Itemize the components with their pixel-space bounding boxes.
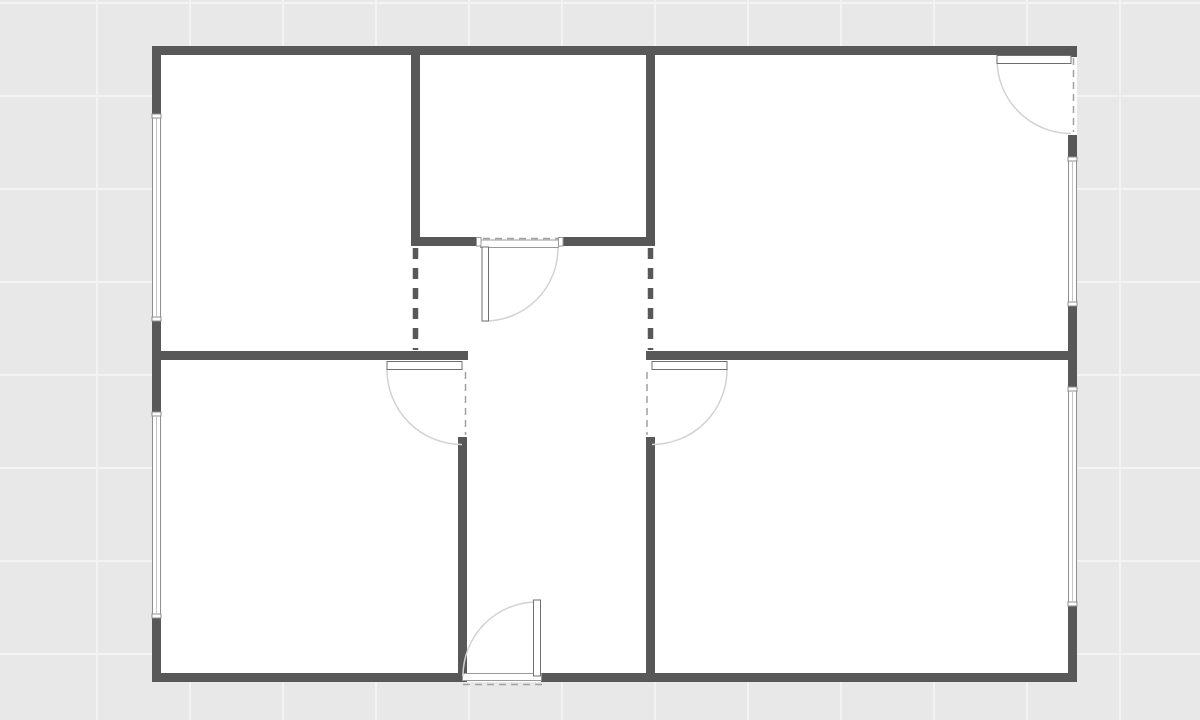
window-end-cap — [1068, 302, 1077, 306]
window-end-cap — [1068, 387, 1077, 391]
window-end-cap — [152, 317, 161, 321]
jamb-top-room-left — [477, 238, 482, 247]
wall-top-room-bottom-right[interactable] — [562, 237, 655, 246]
wall-exterior-left-middle[interactable] — [152, 320, 161, 413]
door-leaf-exterior-top[interactable] — [997, 56, 1071, 64]
wall-hallway-right[interactable] — [646, 437, 655, 673]
wall-exterior-right-middle[interactable] — [1068, 305, 1077, 388]
wall-exterior-top[interactable] — [152, 46, 1077, 55]
window-right-upper[interactable] — [1068, 157, 1077, 306]
wall-hallway-left[interactable] — [458, 437, 467, 673]
window-end-cap — [1068, 157, 1077, 161]
wall-top-room-right[interactable] — [646, 55, 655, 245]
floorplan-stage — [0, 0, 1200, 720]
wall-exterior-right-upper[interactable] — [1068, 135, 1077, 158]
window-end-cap — [1068, 602, 1077, 606]
window-end-cap — [152, 114, 161, 118]
wall-top-room-left[interactable] — [411, 55, 420, 245]
window-left-upper[interactable] — [152, 114, 161, 321]
window-end-cap — [152, 614, 161, 618]
wall-exterior-bottom-left[interactable] — [152, 673, 467, 682]
wall-mid-wall-right[interactable] — [646, 351, 1068, 360]
jamb-top-room-right — [559, 238, 564, 247]
door-leaf-right-room[interactable] — [652, 362, 727, 370]
floorplan-canvas[interactable] — [0, 0, 1200, 720]
wall-exterior-right-lower[interactable] — [1068, 605, 1077, 682]
floor-area — [152, 46, 1077, 682]
window-left-lower[interactable] — [152, 412, 161, 618]
wall-exterior-bottom-right[interactable] — [541, 673, 1077, 682]
door-leaf-entry[interactable] — [534, 600, 541, 676]
window-end-cap — [152, 412, 161, 416]
wall-exterior-left-lower[interactable] — [152, 617, 161, 682]
window-right-lower[interactable] — [1068, 387, 1077, 606]
door-leaf-left-room[interactable] — [387, 362, 462, 370]
wall-exterior-left-upper[interactable] — [152, 46, 161, 115]
wall-mid-wall-left[interactable] — [152, 351, 468, 360]
sill-top-room-door — [481, 240, 559, 248]
sill-entry-door — [463, 674, 542, 681]
door-leaf-top-room[interactable] — [482, 247, 489, 321]
wall-top-room-bottom-left[interactable] — [411, 237, 481, 246]
